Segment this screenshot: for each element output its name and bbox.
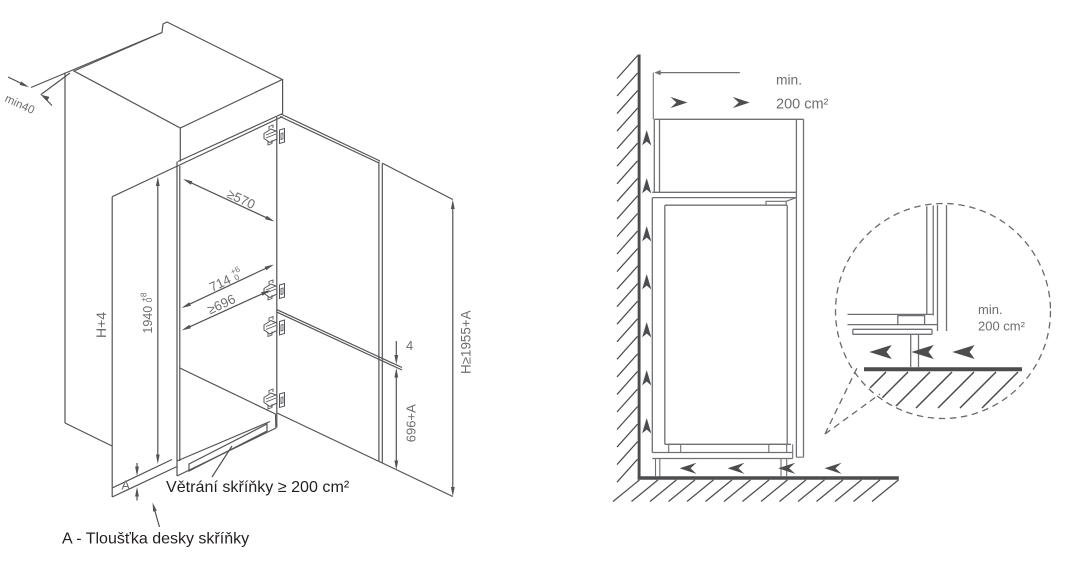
svg-text:A - Tloušťka desky skříňky: A - Tloušťka desky skříňky: [62, 531, 249, 548]
svg-text:0: 0: [144, 297, 154, 302]
svg-text:min.: min.: [776, 73, 802, 88]
svg-text:Větrání skříňky ≥ 200 cm²: Větrání skříňky ≥ 200 cm²: [166, 478, 350, 496]
svg-text:200 cm²: 200 cm²: [776, 97, 829, 113]
svg-text:H≥1955+A: H≥1955+A: [459, 310, 474, 374]
svg-text:A: A: [122, 479, 131, 493]
svg-text:H+4: H+4: [93, 312, 109, 338]
svg-text:1940: 1940: [141, 306, 155, 334]
svg-text:min.: min.: [978, 302, 1003, 317]
svg-text:200 cm²: 200 cm²: [978, 319, 1026, 334]
svg-text:4: 4: [406, 338, 413, 353]
svg-text:696+A: 696+A: [403, 404, 418, 442]
